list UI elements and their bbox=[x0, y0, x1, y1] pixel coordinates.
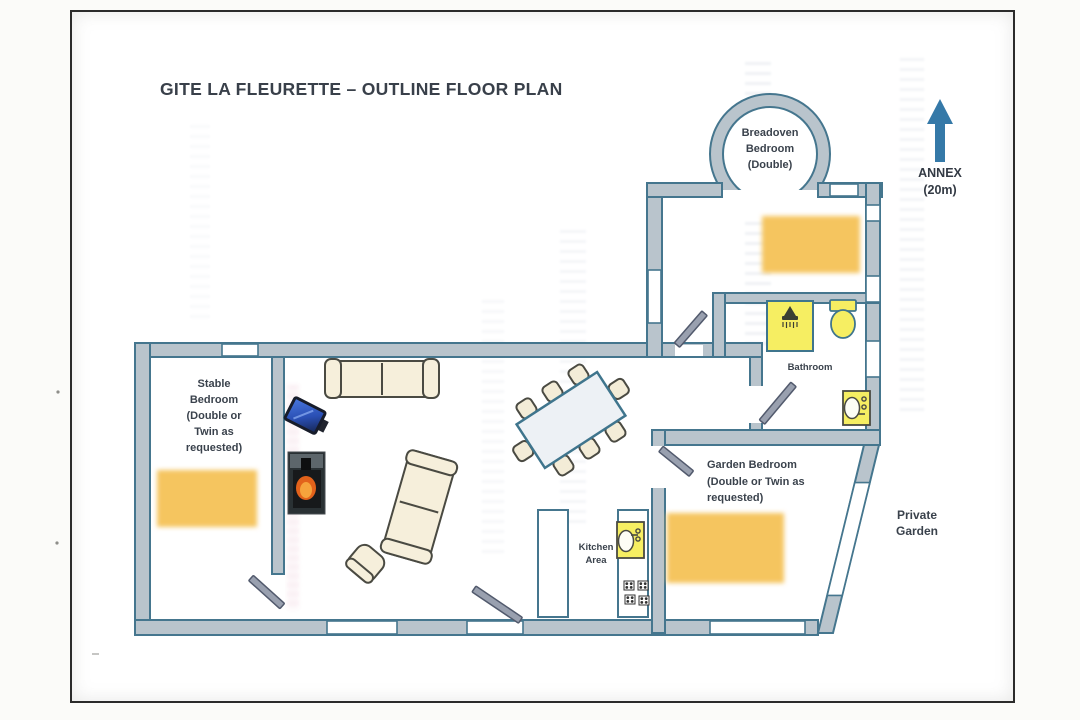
door-swing bbox=[759, 382, 796, 424]
room-label-garden-bedroom: Garden Bedroom (Double or Twin as reques… bbox=[707, 457, 847, 507]
bed-stable bbox=[157, 470, 257, 527]
kitchen-counter bbox=[538, 510, 568, 617]
room-label-kitchen-area: Kitchen Area bbox=[565, 541, 627, 567]
window bbox=[222, 344, 258, 356]
scanned-floor-plan-page: GITE LA FLEURETTE – OUTLINE FLOOR PLAN B… bbox=[0, 0, 1080, 720]
up-arrow-icon bbox=[927, 99, 953, 162]
wood-stove bbox=[288, 452, 325, 514]
room-label-breadoven-bedroom: Breadoven Bedroom (Double) bbox=[708, 125, 832, 173]
window bbox=[866, 341, 880, 377]
window bbox=[830, 184, 858, 196]
sofa-2 bbox=[379, 449, 458, 565]
bed-garden bbox=[667, 513, 784, 583]
toilet-icon bbox=[830, 300, 856, 338]
annex-label: ANNEX (20m) bbox=[903, 165, 977, 199]
window bbox=[866, 276, 880, 302]
room-label-stable-bedroom: Stable Bedroom (Double or Twin as reques… bbox=[163, 376, 265, 456]
wall-stable-divider bbox=[272, 357, 284, 574]
tv-icon bbox=[285, 397, 332, 437]
dining-table-group bbox=[493, 349, 649, 492]
window bbox=[648, 270, 661, 323]
sofa bbox=[325, 359, 439, 398]
floor-plan-drawing bbox=[0, 0, 1080, 720]
door-swing bbox=[674, 311, 707, 347]
scan-specks bbox=[55, 390, 99, 655]
door-swing bbox=[472, 586, 522, 623]
washbasin-icon bbox=[843, 391, 870, 425]
window bbox=[327, 621, 397, 634]
room-label-bathroom: Bathroom bbox=[772, 362, 848, 373]
wall-left bbox=[135, 343, 150, 635]
window bbox=[866, 205, 880, 221]
page-title: GITE LA FLEURETTE – OUTLINE FLOOR PLAN bbox=[160, 79, 563, 100]
bed-breadoven bbox=[762, 216, 860, 273]
wall-bathroom-west-upper bbox=[713, 293, 725, 357]
door-opening bbox=[467, 621, 523, 634]
wall-garden-top bbox=[652, 430, 880, 445]
window bbox=[710, 621, 805, 634]
wall-wing-top-left bbox=[647, 183, 722, 197]
private-garden-label: Private Garden bbox=[880, 507, 954, 539]
